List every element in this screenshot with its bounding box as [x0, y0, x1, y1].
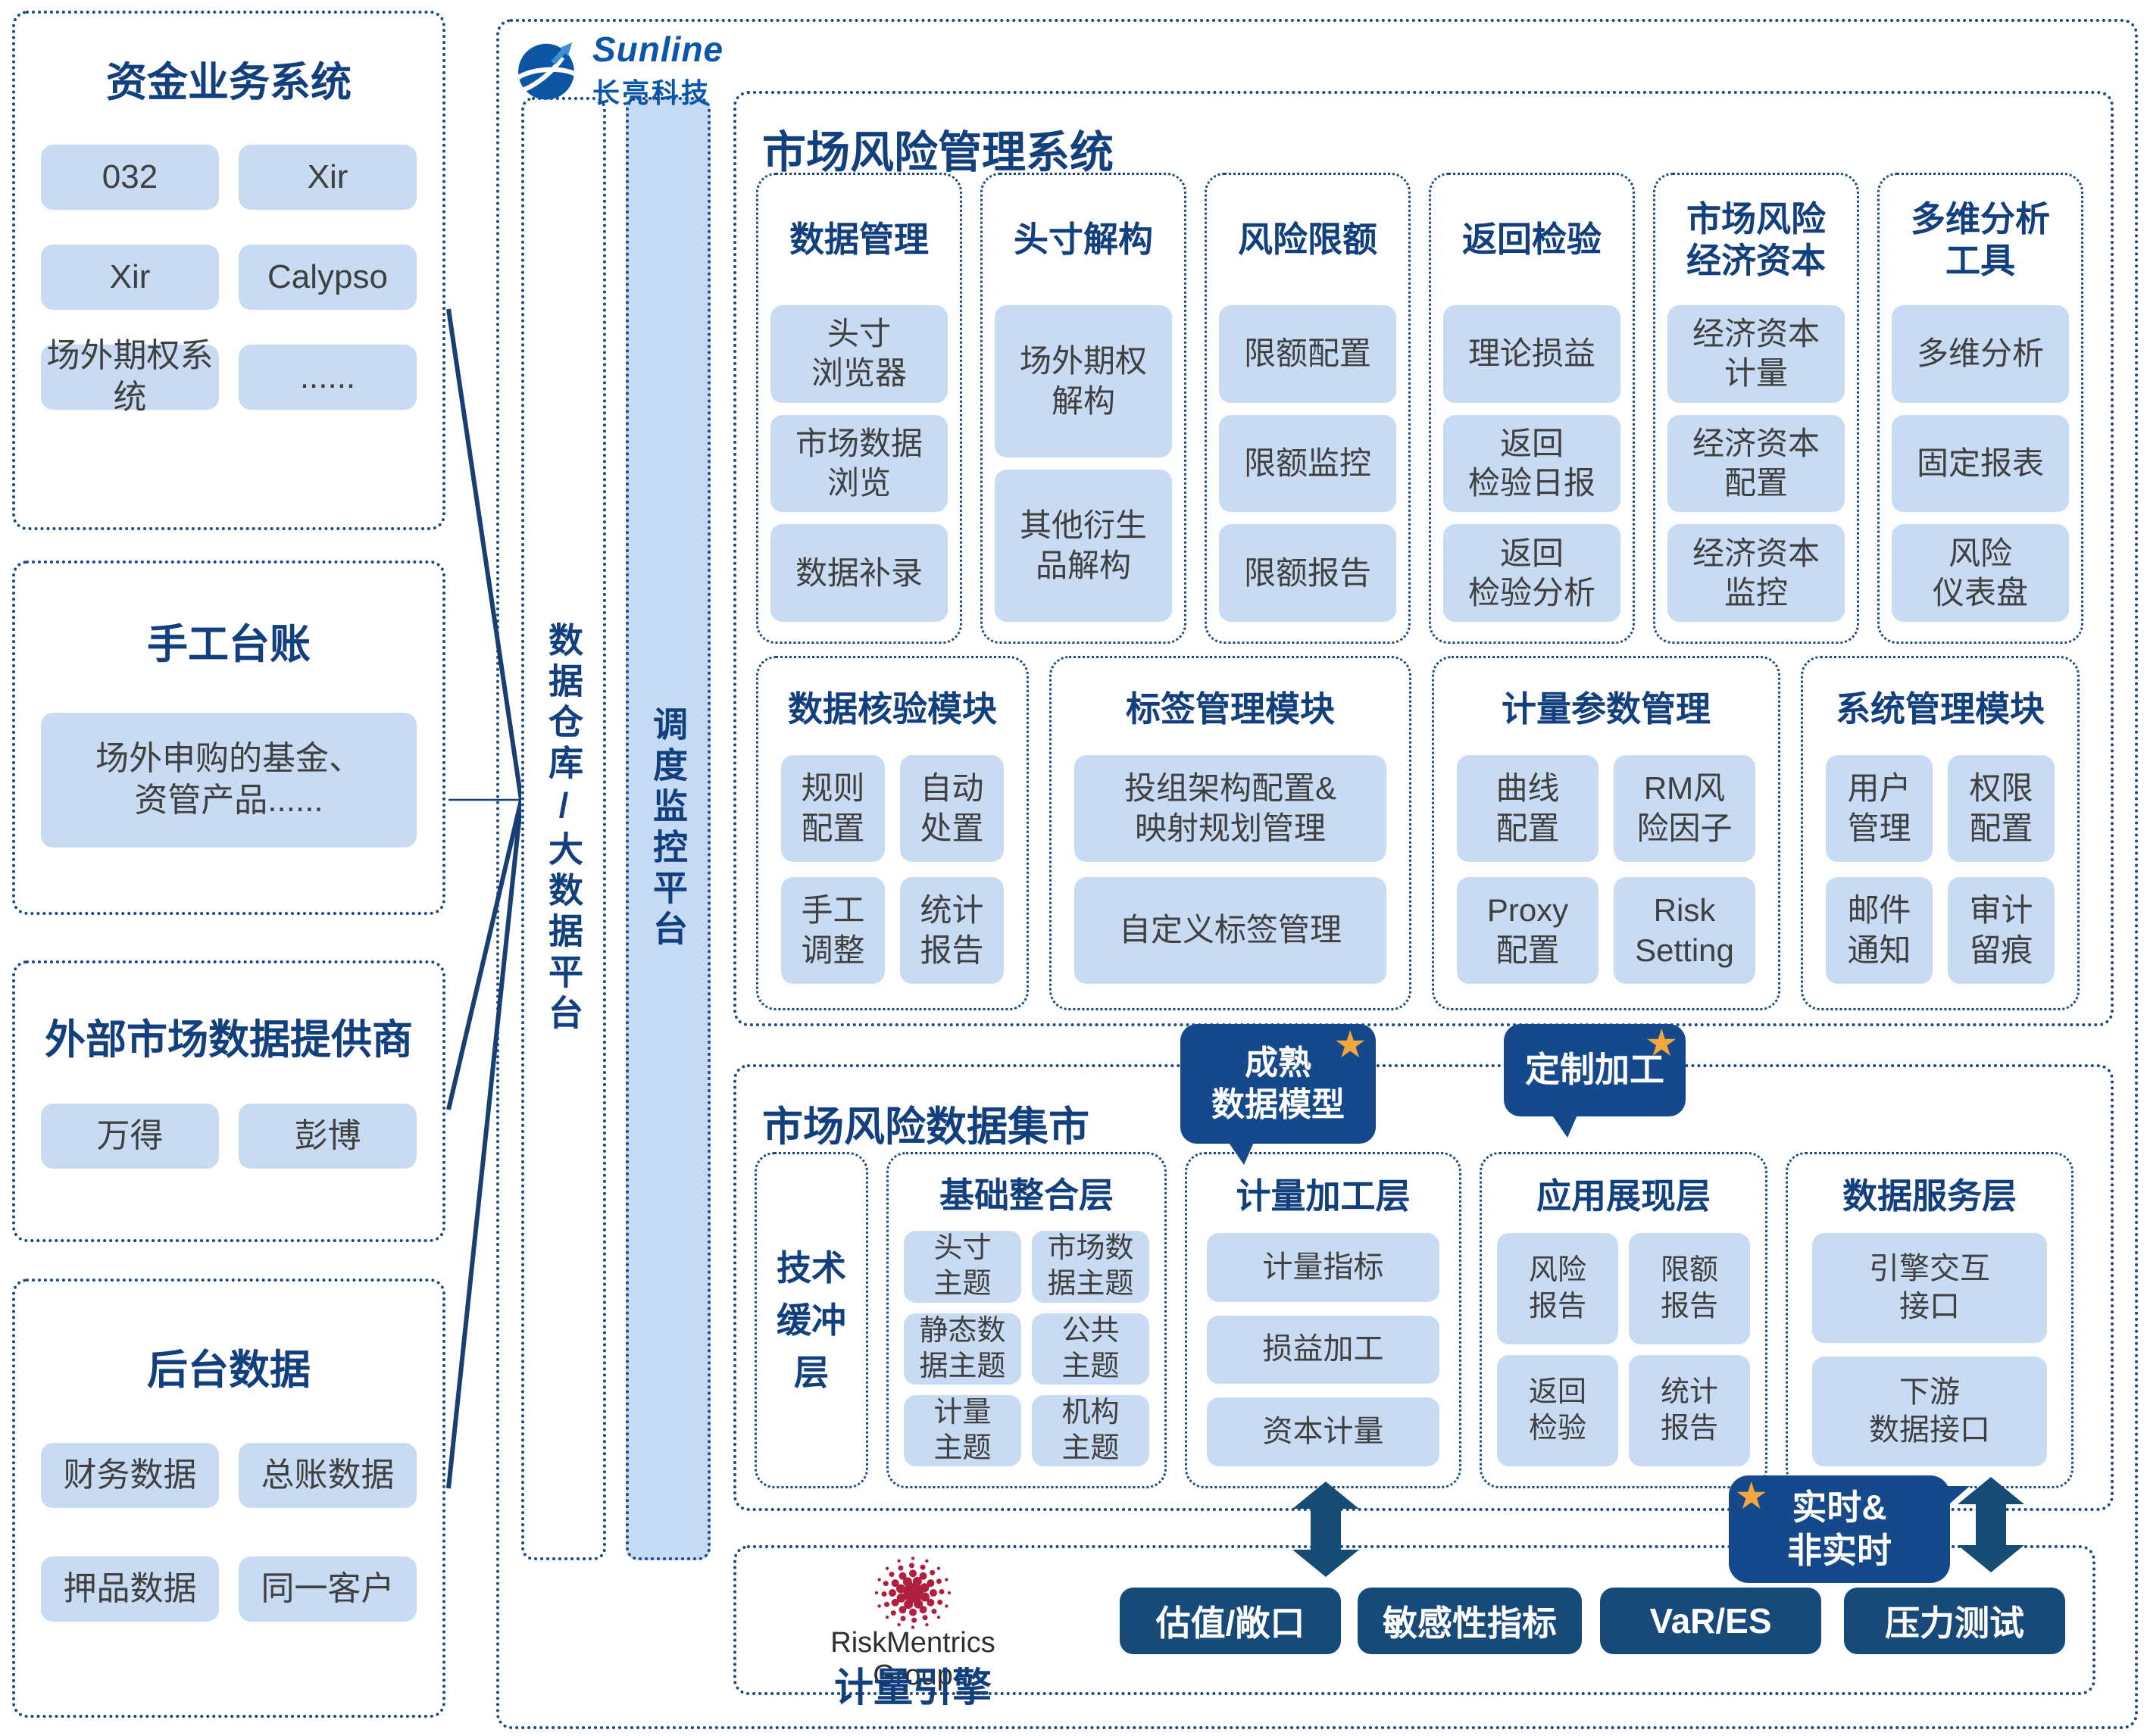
- panel-title: 资金业务系统: [15, 48, 442, 108]
- layer-item: 返回 检验: [1497, 1355, 1618, 1466]
- panel-backoffice-data: 后台数据 财务数据总账数据押品数据同一客户: [12, 1279, 445, 1718]
- engine-button-stress-test: 压力测试: [1844, 1588, 2065, 1654]
- column-multidim-analysis: 多维分析 工具 多维分析固定报表风险 仪表盘: [1877, 173, 2083, 644]
- column-items: 经济资本 计量经济资本 配置经济资本 监控: [1655, 305, 1857, 622]
- layer-item: 头寸 主题: [904, 1231, 1021, 1302]
- layer-item: 限额 报告: [1629, 1233, 1750, 1344]
- sunline-logo: Sunline 长亮科技: [512, 29, 723, 111]
- layer-item: 统计 报告: [1629, 1355, 1750, 1466]
- layer-measurement-processing: 计量加工层 计量指标损益加工资本计量: [1185, 1152, 1461, 1488]
- panel-items: 财务数据总账数据押品数据同一客户: [41, 1443, 417, 1622]
- architecture-diagram: 资金业务系统 032XirXirCalypso场外期权系统...... 手工台账…: [0, 0, 2147, 1736]
- feature-item: 市场数据 浏览: [770, 415, 948, 513]
- feature-item: 限额报告: [1219, 524, 1396, 622]
- module-label-management: 标签管理模块 投组架构配置& 映射规划管理自定义标签管理: [1049, 656, 1411, 1010]
- data-flow-arrow-icon: [1292, 1482, 1359, 1577]
- layer-item: 风险 报告: [1497, 1233, 1618, 1344]
- panel-treasury-systems: 资金业务系统 032XirXirCalypso场外期权系统......: [12, 11, 445, 530]
- module-title: 数据核验模块: [758, 658, 1027, 755]
- badge-tail: [1551, 1113, 1578, 1138]
- data-source: 押品数据: [41, 1556, 219, 1622]
- panel-manual-ledger: 手工台账 场外申购的基金、 资管产品......: [12, 560, 445, 915]
- feature-item: 数据补录: [770, 524, 948, 622]
- badge-label: 定制加工: [1525, 1048, 1664, 1092]
- module-system-management: 系统管理模块 用户 管理权限 配置邮件 通知审计 留痕: [1801, 656, 2080, 1010]
- module-item: 权限 配置: [1948, 755, 2055, 862]
- layer-base-integration: 基础整合层 头寸 主题市场数 据主题静态数 据主题公共 主题计量 主题机构 主题: [886, 1152, 1167, 1488]
- module-item: 用户 管理: [1826, 755, 1933, 862]
- layer-items: 风险 报告限额 报告返回 检验统计 报告: [1482, 1233, 1765, 1466]
- module-item: 自定义标签管理: [1074, 877, 1386, 984]
- column-position-decomposition: 头寸解构 场外期权 解构其他衍生 品解构: [980, 173, 1186, 644]
- feature-item: 其他衍生 品解构: [995, 470, 1172, 622]
- scheduling-monitor-bar: 调度监控平台: [626, 97, 711, 1560]
- layer-item: 机构 主题: [1032, 1395, 1149, 1466]
- module-measurement-params: 计量参数管理 曲线 配置RM风 险因子Proxy 配置Risk Setting: [1432, 656, 1780, 1010]
- engine-title: 计量引擎: [788, 1656, 1038, 1713]
- column-items: 场外期权 解构其他衍生 品解构: [983, 305, 1184, 622]
- source-system: Xir: [239, 145, 417, 210]
- column-title: 头寸解构: [983, 175, 1184, 305]
- source-system: 032: [41, 145, 219, 210]
- badge-tail: [1227, 1141, 1255, 1165]
- layer-title: 计量加工层: [1187, 1154, 1459, 1233]
- layer-items: 头寸 主题市场数 据主题静态数 据主题公共 主题计量 主题机构 主题: [889, 1231, 1164, 1466]
- column-title: 市场风险 经济资本: [1655, 175, 1857, 305]
- column-title: 数据管理: [758, 175, 960, 305]
- module-items: 曲线 配置RM风 险因子Proxy 配置Risk Setting: [1434, 755, 1778, 984]
- column-items: 多维分析固定报表风险 仪表盘: [1880, 305, 2081, 622]
- column-items: 限额配置限额监控限额报告: [1207, 305, 1408, 622]
- layer-data-service: 数据服务层 引擎交互 接口下游 数据接口: [1786, 1152, 2074, 1488]
- feature-item: 经济资本 配置: [1667, 415, 1845, 513]
- layer-tech-buffer: 技术 缓冲 层: [755, 1152, 868, 1488]
- feature-item: 限额配置: [1219, 305, 1396, 403]
- sunline-globe-icon: [512, 36, 580, 104]
- data-mart-title: 市场风险数据集市: [762, 1093, 1089, 1153]
- feature-item: 理论损益: [1443, 305, 1620, 403]
- column-items: 头寸 浏览器市场数据 浏览数据补录: [758, 305, 960, 622]
- source-system: ......: [239, 345, 417, 410]
- data-mart-layers: 技术 缓冲 层 基础整合层 头寸 主题市场数 据主题静态数 据主题公共 主题计量…: [755, 1152, 2074, 1488]
- risk-system-modules: 数据核验模块 规则 配置自动 处置手工 调整统计 报告 标签管理模块 投组架构配…: [756, 656, 2080, 1010]
- data-vendor: 彭博: [239, 1104, 417, 1169]
- source-system: 场外申购的基金、 资管产品......: [41, 713, 417, 848]
- badge-label: 成熟 数据模型: [1211, 1042, 1345, 1126]
- column-title: 风险限额: [1207, 175, 1408, 305]
- data-flow-arrow-icon: [1958, 1477, 2024, 1572]
- brand-name-en: Sunline: [592, 29, 723, 70]
- column-title: 返回检验: [1431, 175, 1633, 305]
- feature-item: 固定报表: [1892, 415, 2069, 513]
- module-items: 规则 配置自动 处置手工 调整统计 报告: [758, 755, 1027, 984]
- column-title: 多维分析 工具: [1880, 175, 2081, 305]
- feature-item: 风险 仪表盘: [1892, 524, 2069, 622]
- layer-title: 技术 缓冲 层: [777, 1242, 846, 1399]
- layer-title: 基础整合层: [889, 1154, 1164, 1231]
- layer-application-presentation: 应用展现层 风险 报告限额 报告返回 检验统计 报告: [1480, 1152, 1767, 1488]
- module-items: 投组架构配置& 映射规划管理自定义标签管理: [1052, 755, 1409, 984]
- star-icon: ★: [1336, 1029, 1365, 1062]
- feature-item: 限额监控: [1219, 415, 1396, 513]
- column-items: 理论损益返回 检验日报返回 检验分析: [1431, 305, 1633, 622]
- column-data-management: 数据管理 头寸 浏览器市场数据 浏览数据补录: [756, 173, 962, 644]
- data-warehouse-label: 数据仓库/大数据平台: [539, 622, 589, 1035]
- scheduling-monitor-label: 调度监控平台: [643, 706, 693, 951]
- badge-realtime: ★ 实时& 非实时: [1729, 1475, 1950, 1583]
- layer-item: 计量指标: [1207, 1233, 1439, 1302]
- brand-name-cn: 长亮科技: [592, 71, 723, 111]
- layer-item: 市场数 据主题: [1032, 1231, 1149, 1302]
- layer-item: 静态数 据主题: [904, 1313, 1021, 1385]
- feature-item: 头寸 浏览器: [770, 305, 948, 403]
- column-risk-limits: 风险限额 限额配置限额监控限额报告: [1205, 173, 1411, 644]
- star-icon: ★: [1736, 1480, 1766, 1513]
- module-title: 计量参数管理: [1434, 658, 1778, 755]
- feature-item: 返回 检验日报: [1443, 415, 1620, 513]
- layer-item: 计量 主题: [904, 1395, 1021, 1466]
- badge-custom-processing: ★ 定制加工: [1504, 1024, 1686, 1116]
- feature-item: 返回 检验分析: [1443, 524, 1620, 622]
- data-mart-box: 市场风险数据集市 技术 缓冲 层 基础整合层 头寸 主题市场数 据主题静态数 据…: [733, 1064, 2114, 1511]
- module-title: 标签管理模块: [1052, 658, 1409, 755]
- layer-item: 下游 数据接口: [1812, 1357, 2047, 1466]
- module-items: 用户 管理权限 配置邮件 通知审计 留痕: [1803, 755, 2077, 984]
- module-item: 规则 配置: [781, 755, 885, 862]
- module-item: Risk Setting: [1614, 877, 1755, 984]
- engine-button-sensitivity: 敏感性指标: [1358, 1588, 1582, 1654]
- data-warehouse-bar: 数据仓库/大数据平台: [521, 97, 606, 1560]
- feature-item: 经济资本 计量: [1667, 305, 1845, 403]
- panel-title: 手工台账: [15, 610, 442, 670]
- data-source: 总账数据: [239, 1443, 417, 1508]
- panel-items: 032XirXirCalypso场外期权系统......: [41, 145, 417, 410]
- engine-button-valuation: 估值/敞口: [1120, 1588, 1341, 1654]
- module-item: 统计 报告: [900, 877, 1004, 984]
- column-economic-capital: 市场风险 经济资本 经济资本 计量经济资本 配置经济资本 监控: [1653, 173, 1859, 644]
- risk-system-title: 市场风险管理系统: [762, 117, 1114, 180]
- module-item: RM风 险因子: [1614, 755, 1755, 862]
- source-system: 场外期权系统: [41, 345, 219, 410]
- feature-item: 多维分析: [1892, 305, 2069, 403]
- layer-item: 引擎交互 接口: [1812, 1233, 2047, 1343]
- riskmetrics-logo-icon: [860, 1551, 966, 1635]
- module-title: 系统管理模块: [1803, 658, 2077, 755]
- layer-item: 公共 主题: [1032, 1313, 1149, 1385]
- module-item: 自动 处置: [900, 755, 1004, 862]
- star-icon: ★: [1647, 1027, 1677, 1060]
- risk-system-columns: 数据管理 头寸 浏览器市场数据 浏览数据补录 头寸解构 场外期权 解构其他衍生 …: [756, 173, 2083, 644]
- badge-label: 实时& 非实时: [1787, 1486, 1892, 1573]
- column-backtesting: 返回检验 理论损益返回 检验日报返回 检验分析: [1429, 173, 1635, 644]
- badge-mature-data-model: ★ 成熟 数据模型: [1180, 1024, 1376, 1144]
- module-item: 邮件 通知: [1826, 877, 1933, 984]
- panel-items: 万得彭博: [41, 1104, 417, 1169]
- module-data-verification: 数据核验模块 规则 配置自动 处置手工 调整统计 报告: [756, 656, 1029, 1010]
- engine-button-var-es: VaR/ES: [1600, 1588, 1821, 1654]
- source-system: Calypso: [239, 245, 417, 310]
- data-vendor: 万得: [41, 1104, 219, 1169]
- layer-title: 应用展现层: [1482, 1154, 1765, 1233]
- module-item: 曲线 配置: [1457, 755, 1599, 862]
- module-item: 投组架构配置& 映射规划管理: [1074, 755, 1386, 862]
- module-item: 审计 留痕: [1948, 877, 2055, 984]
- data-source: 财务数据: [41, 1443, 219, 1508]
- feature-item: 经济资本 监控: [1667, 524, 1845, 622]
- source-system: Xir: [41, 245, 219, 310]
- feature-item: 场外期权 解构: [995, 305, 1172, 457]
- data-source: 同一客户: [239, 1556, 417, 1622]
- layer-items: 计量指标损益加工资本计量: [1187, 1233, 1459, 1466]
- risk-system-box: 市场风险管理系统 数据管理 头寸 浏览器市场数据 浏览数据补录 头寸解构 场外期…: [733, 91, 2114, 1026]
- panel-external-market-data: 外部市场数据提供商 万得彭博: [12, 960, 445, 1242]
- sunline-logo-text: Sunline 长亮科技: [592, 29, 723, 111]
- module-item: 手工 调整: [781, 877, 885, 984]
- panel-title: 后台数据: [15, 1336, 442, 1396]
- module-item: Proxy 配置: [1457, 877, 1599, 984]
- layer-items: 引擎交互 接口下游 数据接口: [1788, 1233, 2071, 1466]
- layer-item: 资本计量: [1207, 1397, 1439, 1466]
- panel-items: 场外申购的基金、 资管产品......: [41, 713, 417, 848]
- layer-title: 数据服务层: [1788, 1154, 2071, 1233]
- panel-title: 外部市场数据提供商: [15, 1006, 442, 1066]
- layer-item: 损益加工: [1207, 1316, 1439, 1385]
